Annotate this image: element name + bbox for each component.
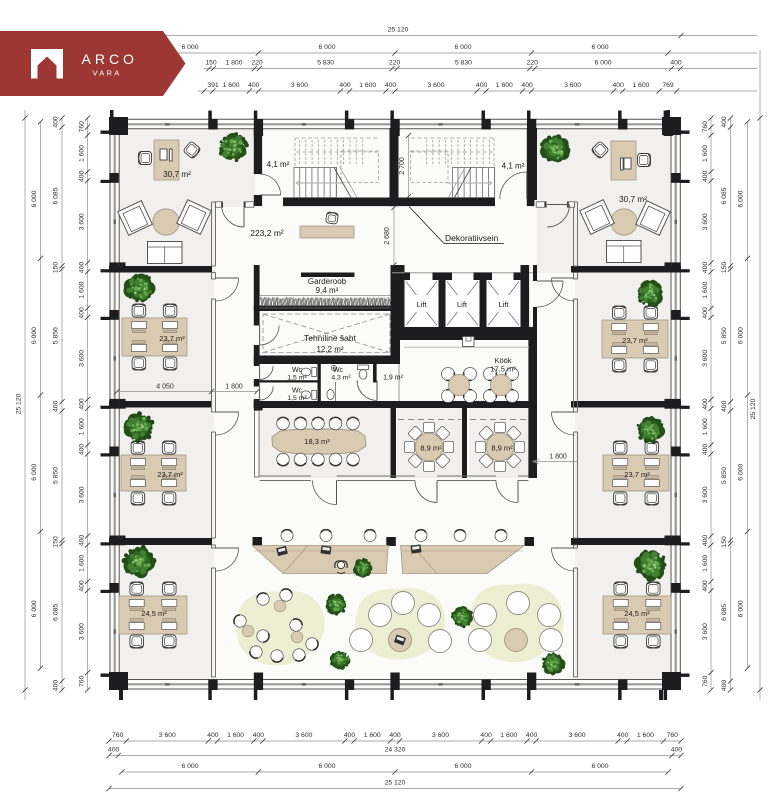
svg-text:400: 400	[52, 400, 59, 412]
svg-text:1 800: 1 800	[549, 454, 567, 461]
svg-text:400: 400	[253, 732, 265, 739]
svg-text:3 600: 3 600	[427, 82, 444, 89]
svg-text:23,7 m²: 23,7 m²	[622, 336, 648, 345]
svg-text:6 000: 6 000	[595, 60, 612, 67]
svg-text:6 000: 6 000	[181, 44, 198, 51]
svg-text:1 600: 1 600	[632, 82, 649, 89]
svg-text:12,2 m²: 12,2 m²	[316, 345, 343, 354]
svg-text:220: 220	[389, 60, 401, 67]
svg-text:760: 760	[702, 675, 709, 687]
svg-text:400: 400	[702, 398, 709, 410]
svg-text:400: 400	[78, 444, 85, 456]
svg-text:400: 400	[613, 82, 625, 89]
svg-text:1 600: 1 600	[223, 82, 240, 89]
svg-text:8,9 m²: 8,9 m²	[491, 444, 513, 453]
svg-text:5 830: 5 830	[455, 60, 472, 67]
svg-text:6 000: 6 000	[737, 600, 744, 617]
svg-text:3 600: 3 600	[432, 732, 449, 739]
svg-text:400: 400	[52, 680, 59, 692]
svg-text:1 600: 1 600	[500, 732, 517, 739]
svg-text:400: 400	[702, 580, 709, 592]
svg-text:24,5 m²: 24,5 m²	[624, 609, 650, 618]
svg-text:400: 400	[721, 680, 728, 692]
svg-text:Lift: Lift	[457, 300, 468, 309]
svg-text:760: 760	[667, 732, 679, 739]
svg-text:400: 400	[480, 732, 492, 739]
svg-text:Garderoob: Garderoob	[308, 277, 347, 286]
svg-text:5 850: 5 850	[721, 467, 728, 484]
svg-text:150: 150	[52, 262, 59, 274]
svg-text:23,7 m²: 23,7 m²	[157, 470, 183, 479]
svg-text:3 600: 3 600	[702, 213, 709, 230]
svg-text:3 600: 3 600	[569, 732, 586, 739]
svg-text:25 120: 25 120	[385, 780, 406, 787]
svg-text:17,5 m²: 17,5 m²	[490, 365, 516, 374]
svg-text:400: 400	[248, 82, 260, 89]
svg-text:1,5 m²: 1,5 m²	[287, 395, 307, 402]
svg-text:9,4 m²: 9,4 m²	[316, 286, 339, 295]
svg-text:760: 760	[78, 675, 85, 687]
svg-text:5 830: 5 830	[317, 60, 334, 67]
svg-text:150: 150	[721, 536, 728, 548]
svg-text:Wc: Wc	[292, 388, 303, 395]
svg-text:6 000: 6 000	[318, 763, 335, 770]
svg-text:6 085: 6 085	[721, 604, 728, 621]
svg-text:Lift: Lift	[416, 300, 427, 309]
svg-text:3 600: 3 600	[564, 82, 581, 89]
svg-text:6 000: 6 000	[31, 463, 38, 480]
svg-text:400: 400	[78, 307, 85, 319]
svg-text:391: 391	[207, 82, 219, 89]
svg-text:1 600: 1 600	[359, 82, 376, 89]
svg-text:6 000: 6 000	[737, 327, 744, 344]
svg-text:6 000: 6 000	[454, 44, 471, 51]
svg-text:30,7 m²: 30,7 m²	[163, 170, 191, 179]
svg-text:6 085: 6 085	[52, 604, 59, 621]
svg-text:1 600: 1 600	[364, 732, 381, 739]
svg-text:6 000: 6 000	[31, 327, 38, 344]
svg-text:Wc: Wc	[333, 367, 344, 374]
svg-text:400: 400	[339, 82, 351, 89]
svg-text:400: 400	[344, 732, 356, 739]
svg-text:400: 400	[521, 82, 533, 89]
svg-text:1 600: 1 600	[78, 555, 85, 572]
svg-text:150: 150	[52, 536, 59, 548]
svg-text:1 600: 1 600	[227, 732, 244, 739]
svg-text:8,9 m²: 8,9 m²	[420, 444, 442, 453]
svg-text:25 120: 25 120	[750, 398, 757, 419]
svg-text:400: 400	[78, 398, 85, 410]
svg-text:6 085: 6 085	[52, 187, 59, 204]
svg-text:1 600: 1 600	[78, 281, 85, 298]
svg-text:18,3 m²: 18,3 m²	[304, 437, 330, 446]
svg-text:6 000: 6 000	[31, 190, 38, 207]
svg-text:25 120: 25 120	[388, 27, 409, 34]
svg-text:3 600: 3 600	[159, 732, 176, 739]
svg-text:400: 400	[78, 535, 85, 547]
svg-text:ARCO: ARCO	[82, 51, 138, 67]
svg-text:1 800: 1 800	[225, 384, 243, 391]
svg-text:1 600: 1 600	[78, 145, 85, 162]
svg-text:6 000: 6 000	[31, 600, 38, 617]
svg-text:6 085: 6 085	[721, 187, 728, 204]
svg-text:6 000: 6 000	[591, 763, 608, 770]
svg-text:24 320: 24 320	[385, 747, 406, 754]
svg-text:3 600: 3 600	[78, 213, 85, 230]
svg-text:760: 760	[702, 121, 709, 133]
svg-text:4 050: 4 050	[156, 384, 174, 391]
svg-text:3 600: 3 600	[702, 350, 709, 367]
svg-text:3 600: 3 600	[702, 623, 709, 640]
svg-text:760: 760	[78, 121, 85, 133]
svg-text:6 000: 6 000	[591, 44, 608, 51]
svg-text:25 120: 25 120	[15, 393, 22, 414]
svg-text:30,7 m²: 30,7 m²	[619, 195, 647, 204]
svg-text:Dekoratiivsein: Dekoratiivsein	[445, 233, 499, 243]
svg-text:400: 400	[702, 170, 709, 182]
svg-text:1 600: 1 600	[637, 732, 654, 739]
svg-text:400: 400	[670, 60, 682, 67]
svg-text:2 700: 2 700	[399, 157, 406, 175]
svg-text:4,3 m²: 4,3 m²	[331, 375, 351, 382]
svg-text:6 000: 6 000	[181, 763, 198, 770]
svg-text:Wc: Wc	[292, 367, 303, 374]
svg-text:400: 400	[385, 82, 397, 89]
svg-text:223,2 m²: 223,2 m²	[250, 228, 284, 238]
svg-text:Lift: Lift	[498, 300, 509, 309]
svg-text:400: 400	[721, 400, 728, 412]
svg-text:3 600: 3 600	[78, 623, 85, 640]
svg-text:6 000: 6 000	[454, 763, 471, 770]
svg-text:23,7 m²: 23,7 m²	[159, 334, 185, 343]
svg-text:400: 400	[78, 170, 85, 182]
svg-text:1 600: 1 600	[702, 418, 709, 435]
svg-text:6 000: 6 000	[737, 463, 744, 480]
svg-text:400: 400	[389, 732, 401, 739]
svg-text:3 600: 3 600	[702, 486, 709, 503]
svg-text:220: 220	[527, 60, 539, 67]
svg-text:400: 400	[671, 747, 683, 754]
svg-text:400: 400	[702, 535, 709, 547]
svg-text:400: 400	[721, 116, 728, 128]
svg-text:400: 400	[78, 262, 85, 274]
svg-text:23,7 m²: 23,7 m²	[624, 470, 650, 479]
svg-text:3 600: 3 600	[291, 82, 308, 89]
svg-text:6 000: 6 000	[737, 190, 744, 207]
svg-text:400: 400	[207, 732, 219, 739]
svg-text:5 850: 5 850	[721, 327, 728, 344]
svg-text:400: 400	[702, 262, 709, 274]
svg-text:6 000: 6 000	[318, 44, 335, 51]
svg-text:VARA: VARA	[93, 68, 122, 77]
svg-text:1,5 m²: 1,5 m²	[287, 375, 307, 382]
svg-text:3 600: 3 600	[78, 486, 85, 503]
svg-text:24,5 m²: 24,5 m²	[141, 609, 167, 618]
svg-text:760: 760	[112, 732, 124, 739]
svg-text:4,1 m²: 4,1 m²	[267, 160, 290, 169]
svg-text:1 800: 1 800	[225, 60, 242, 67]
svg-text:400: 400	[52, 116, 59, 128]
svg-text:400: 400	[526, 732, 538, 739]
svg-text:3 600: 3 600	[295, 732, 312, 739]
svg-text:1 600: 1 600	[702, 281, 709, 298]
svg-text:400: 400	[702, 307, 709, 319]
svg-text:400: 400	[108, 747, 120, 754]
svg-text:4,1 m²: 4,1 m²	[502, 162, 525, 171]
svg-text:400: 400	[617, 732, 629, 739]
svg-text:2 680: 2 680	[384, 227, 391, 245]
svg-text:1 600: 1 600	[702, 145, 709, 162]
svg-text:150: 150	[721, 262, 728, 274]
svg-text:220: 220	[251, 60, 263, 67]
svg-text:400: 400	[78, 580, 85, 592]
svg-text:Tehniline šaht: Tehniline šaht	[304, 333, 357, 343]
svg-text:1 600: 1 600	[702, 555, 709, 572]
svg-text:1 600: 1 600	[496, 82, 513, 89]
svg-text:3 600: 3 600	[78, 350, 85, 367]
svg-text:150: 150	[205, 60, 217, 67]
svg-text:5 850: 5 850	[52, 467, 59, 484]
svg-text:1 600: 1 600	[78, 418, 85, 435]
svg-text:400: 400	[702, 444, 709, 456]
svg-text:400: 400	[476, 82, 488, 89]
svg-text:1,9 m²: 1,9 m²	[383, 375, 404, 382]
svg-text:5 850: 5 850	[52, 327, 59, 344]
svg-text:769: 769	[662, 82, 674, 89]
